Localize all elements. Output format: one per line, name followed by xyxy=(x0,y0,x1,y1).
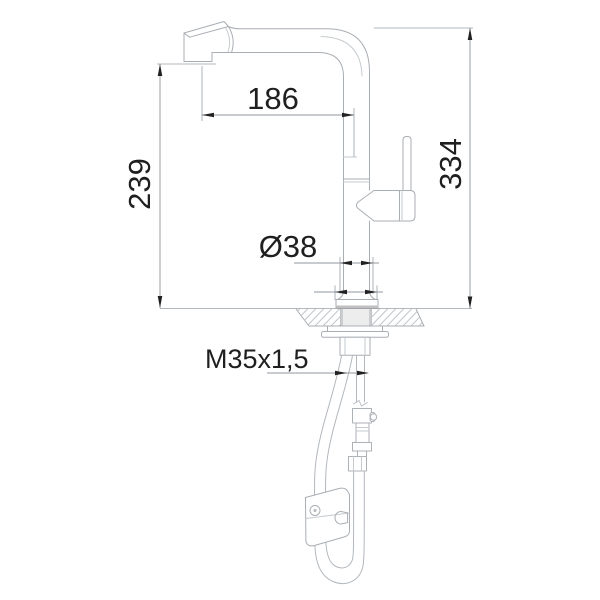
technical-drawing: 186 239 334 Ø38 M35x1,5 xyxy=(0,0,600,600)
dimension-label-base-diameter: Ø38 xyxy=(259,229,318,264)
mounting-plate xyxy=(322,332,389,338)
fitting-knob xyxy=(370,414,376,420)
base-column xyxy=(336,221,378,309)
counterweight xyxy=(306,488,350,546)
mounting-hardware xyxy=(322,326,389,355)
dimension-label-spout-reach: 186 xyxy=(247,81,299,116)
washer xyxy=(328,326,383,332)
drawing-canvas: 186 239 334 Ø38 M35x1,5 xyxy=(0,0,600,600)
dimension-label-overall-height: 334 xyxy=(433,138,468,190)
supply-tube xyxy=(357,356,365,403)
spray-head xyxy=(184,22,233,62)
threaded-shank xyxy=(341,309,372,327)
dimension-arrows xyxy=(158,28,473,375)
hose-fittings xyxy=(349,409,377,472)
ext-lines-dia38 xyxy=(335,257,377,300)
dimension-label-underspout-height: 239 xyxy=(122,158,157,210)
dimension-label-thread-size: M35x1,5 xyxy=(205,344,309,374)
faucet-outline xyxy=(184,22,415,309)
tube-break-symbol xyxy=(354,401,368,407)
hex-nut xyxy=(349,457,367,472)
countertop xyxy=(282,309,436,328)
dimensions: 186 239 334 Ø38 M35x1,5 xyxy=(122,28,473,375)
